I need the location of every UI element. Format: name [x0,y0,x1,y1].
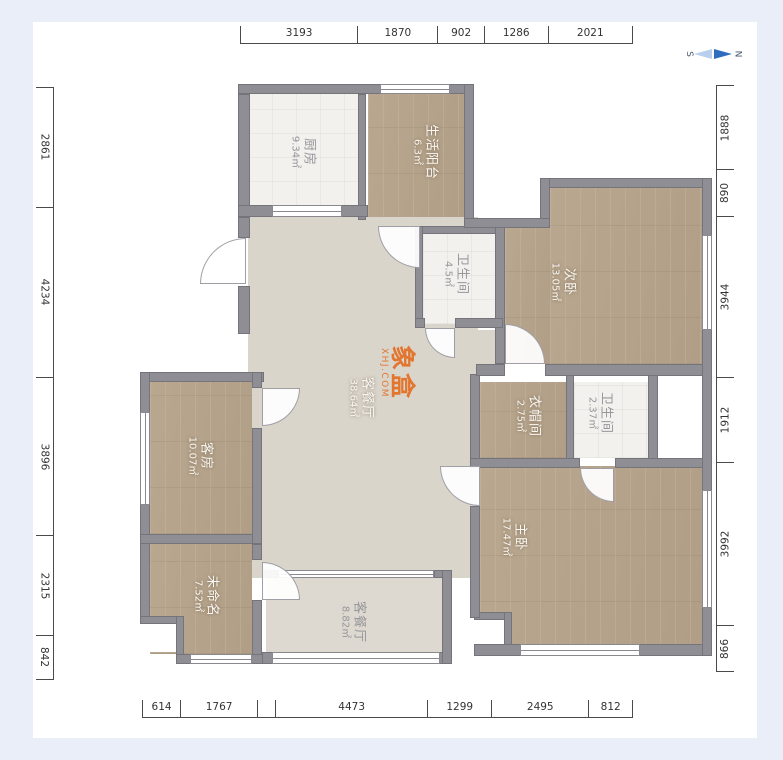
compass-needle-south-icon [694,49,712,59]
dimension-segment: 3992 [717,462,734,625]
entry-door-arc [200,238,246,284]
wall-segment-35 [415,318,425,328]
dimension-segment: 3193 [240,26,357,43]
window-4 [272,652,440,664]
dimension-segment: 4473 [275,700,427,717]
dimension-chain-right: 1888890394419123992866 [716,85,734,672]
wall-segment-36 [455,318,503,328]
exterior-notch-master [478,620,506,646]
window-3 [190,654,252,664]
dimension-segment: 1767 [180,700,257,717]
dimension-segment: 2315 [36,535,53,634]
dimension-segment: 812 [588,700,633,717]
dimension-value: 1286 [503,26,530,39]
dimension-value: 1888 [720,114,732,141]
wall-segment-39 [464,218,550,228]
wall-segment-24 [470,374,480,466]
room-floor-bathroom-1 [423,234,495,324]
dimension-segment: 2021 [548,26,633,43]
dimension-value: 2861 [39,134,51,161]
wall-segment-2 [358,94,366,220]
wall-segment-3 [464,84,474,226]
dimension-value: 2315 [39,572,51,599]
window-0 [272,205,342,217]
wall-segment-5 [238,217,250,238]
window-1 [380,84,450,94]
dimension-segment [257,700,275,717]
wall-segment-6 [238,286,250,334]
dimension-value: 812 [601,700,621,713]
wall-segment-28 [470,458,580,468]
room-floor-living-balcony [368,94,464,220]
wall-segment-1 [238,94,250,217]
dimension-value: 890 [720,183,732,203]
dimension-segment: 3944 [717,216,734,378]
window-5 [520,644,640,656]
window-6 [702,235,712,330]
wall-segment-30 [476,364,505,376]
wall-segment-27 [648,374,658,466]
dimension-value: 614 [152,700,172,713]
dimension-value: 2495 [527,700,554,713]
dimension-segment: 2861 [36,87,53,207]
dimension-segment: 2495 [491,700,588,717]
dimension-value: 2021 [577,26,604,39]
dimension-value: 1299 [446,700,473,713]
window-8 [278,570,434,578]
room-floor-cloakroom [480,382,566,458]
dimension-segment: 1870 [357,26,437,43]
dimension-segment: 842 [36,635,53,680]
dimension-chain-top: 3193187090212862021 [240,26,633,44]
compass: S N [686,49,740,59]
dimension-value: 1767 [206,700,233,713]
dimension-segment: 614 [142,700,180,717]
dimension-segment: 4234 [36,207,53,378]
wall-segment-29 [615,458,712,468]
wall-segment-7 [140,372,264,382]
dimension-value: 1870 [385,26,412,39]
wall-segment-10 [252,372,262,388]
compass-south-label: S [684,51,694,57]
dimension-segment: 1299 [427,700,491,717]
dimension-segment: 1286 [484,26,548,43]
dimension-segment: 902 [437,26,483,43]
wall-segment-34 [495,222,505,364]
dimension-value: 3992 [720,531,732,558]
dimension-chain-left: 2861423438962315842 [36,87,54,680]
wall-segment-37 [540,178,712,188]
dimension-value: 4234 [39,279,51,306]
wall-segment-25 [470,506,480,618]
room-floor-second-bedroom [550,188,702,364]
dimension-value: 3896 [39,443,51,470]
dimension-chain-bottom: 6141767447312992495812 [142,700,633,718]
wall-segment-31 [545,364,712,376]
window-7 [702,490,712,608]
wall-segment-26 [566,372,574,466]
dimension-value: 842 [39,647,51,667]
room-floor-guest-room [150,382,252,534]
dimension-segment: 866 [717,625,734,672]
dimension-value: 3944 [720,283,732,310]
room-floor-bathroom-2 [574,382,648,458]
floorplan-page: 厨房9.34㎡生活阳台6.3㎡卫生间4.5㎡次卧13.05㎡客餐厅38.64㎡衣… [0,0,783,760]
dimension-segment: 1888 [717,85,734,169]
dimension-value: 866 [720,639,732,659]
wall-segment-20 [442,570,452,664]
wall-segment-9 [140,534,262,544]
dimension-value: 3193 [286,26,313,39]
dimension-value: 4473 [338,700,365,713]
dimension-value: 902 [451,26,471,39]
dimension-segment: 890 [717,169,734,216]
wall-segment-12 [252,544,262,560]
exterior-notch-unnamed [150,622,177,652]
wall-segment-11 [252,428,262,544]
floorplan-drawing: 厨房9.34㎡生活阳台6.3㎡卫生间4.5㎡次卧13.05㎡客餐厅38.64㎡衣… [0,0,783,760]
dimension-segment: 3896 [36,377,53,535]
window-2 [140,412,150,505]
compass-north-label: N [732,51,742,58]
compass-needle-north-icon [714,49,732,59]
dimension-segment: 1912 [717,377,734,462]
room-floor-kitchen [248,94,360,206]
dimension-value: 1912 [720,407,732,434]
